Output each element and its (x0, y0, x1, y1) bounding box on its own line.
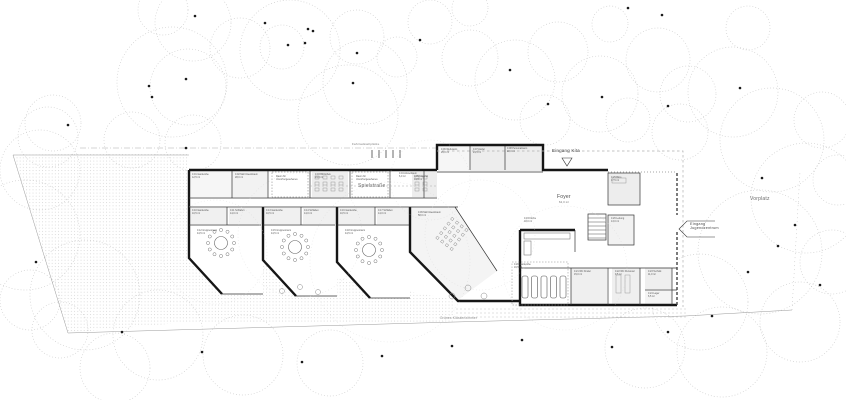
room-label: 0.08 Personalraum22,0 m² (507, 148, 527, 154)
room-label: 0.10 Garderobe10,5 m² (192, 210, 209, 216)
room-label: 0.14 Schlafen14,0 m² (304, 210, 319, 216)
room-label: 0.12 Gruppenraum44,5 m² (197, 230, 217, 236)
room-label: 0.01 Garderobe12,5 m² (192, 174, 209, 180)
room-label: 0.05 Material14,5 m² (414, 176, 428, 182)
eingang-jugendzentrum-label: Eingang Jugendzentrum (690, 222, 719, 231)
room-label: 0.22 WC Personal9,5 m² (615, 271, 634, 277)
room-label: 0.25 Büro17,5 m² (611, 177, 621, 183)
room-label: 0.13 Garderobe10,5 m² (266, 210, 283, 216)
room-label: 0.18 Gruppenraum44,5 m² (345, 230, 365, 236)
room-label: Raum fürUnvorhergesehenes (356, 176, 378, 182)
foyer-label: Foyer (557, 194, 571, 200)
room-label: 0.07 Atelier24,5 m² (473, 149, 485, 155)
room-label: 0.17 Schlafen14,0 m² (378, 210, 393, 216)
room-label: 0.09 Mehrzweckraum58,0 m² (418, 212, 441, 218)
eingang-jugendzentrum-line2: Jugendzentrum (690, 226, 719, 230)
room-label: 0.20 Garderobe16,5 m² (514, 264, 531, 270)
eingang-kita-label: Eingang Kita (552, 148, 580, 153)
room-label: 0.06 Werkraum26,0 m² (441, 149, 457, 155)
room-label: Raum fürUnvorhergesehenes (276, 176, 298, 182)
fahrradstellplaetze-label: Fahrradstellplätze (352, 142, 379, 146)
foyer-area-label: 62,0 m² (559, 201, 569, 204)
vorplatz-label: Vorplatz (750, 196, 770, 202)
site-plan-canvas: Eingang Kita Spielstraße Foyer 62,0 m² V… (0, 0, 846, 400)
room-label: 0.11 Schlafen14,0 m² (230, 210, 244, 216)
room-label: 0.21 WC Kinder15,0 m² (574, 271, 591, 277)
room-label: 0.15 Gruppenraum44,5 m² (271, 230, 291, 236)
room-label: 0.03 Bibliothek24,0 m² (315, 174, 331, 180)
room-label: 0.02 Mehrzweckraum28,0 m² (235, 174, 258, 180)
room-label: 0.24 Lager6,5 m² (648, 293, 659, 299)
room-label: 0.23 Technik11,0 m² (648, 271, 661, 277)
room-label: 0.16 Garderobe10,5 m² (340, 210, 357, 216)
floor-plan-drawing (0, 0, 846, 400)
room-label: 0.19 Küche18,0 m² (524, 218, 536, 224)
room-label: 0.26 Leitung13,0 m² (611, 218, 624, 224)
gruenes-klassenzimmer-label: Grünes Klassenzimmer (440, 316, 477, 320)
spielstrasse-label: Spielstraße (358, 183, 386, 189)
paved-band (455, 306, 687, 319)
